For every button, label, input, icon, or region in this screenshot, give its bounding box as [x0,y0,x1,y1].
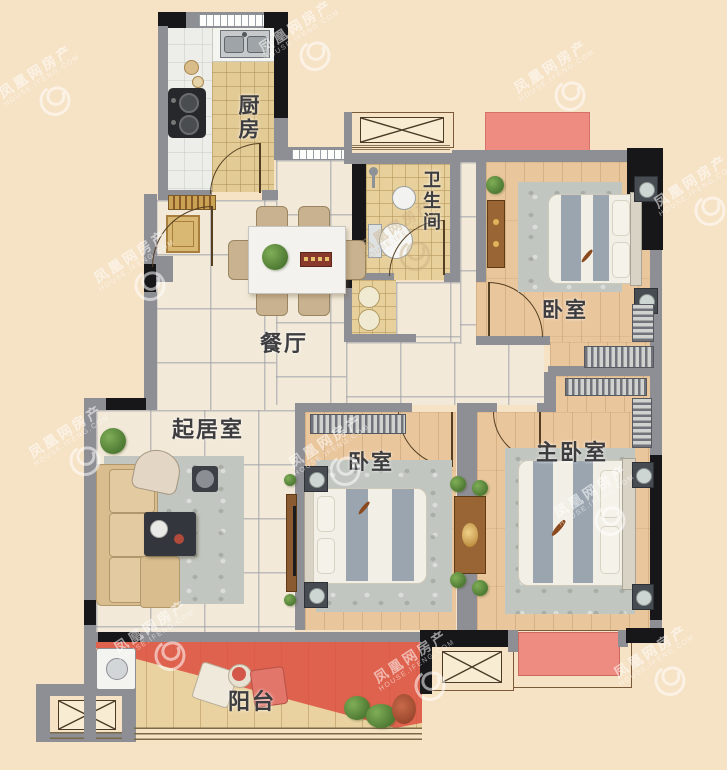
living-plant [100,428,126,454]
kitchen-wall-right [274,118,288,160]
deco-plant [284,474,296,486]
dining-table-plant [262,244,288,270]
balcony-label: 阳台 [228,684,276,716]
closet-plant [450,476,466,492]
balcony-tray [232,667,246,681]
watermark: 凤凰网房产 HOUSE.IFENG.COM [0,30,122,156]
flower-bed-post [508,630,518,652]
pillow [317,538,335,574]
headboard [630,192,642,286]
bedroom-middle-label: 卧室 [348,446,394,476]
nightstand [304,466,328,492]
bathroom-sink [392,186,416,210]
watermark-brand: 凤凰网房产 [0,30,95,114]
master-wall-top-b [537,403,556,412]
nightstand [304,582,328,608]
ac-platform-icon [360,117,444,143]
balcony-railing [134,726,422,740]
flower-bed-south [518,632,620,676]
kitchen-wall-left [158,26,168,194]
wall-black [106,398,146,410]
bathroom-wall-right [450,155,460,282]
kitchen-sink [220,30,270,58]
closet-plant [450,572,466,588]
left-wall-upper [144,292,157,402]
master-label: 主卧室 [536,435,608,467]
dining-table-tray [300,252,332,267]
dining-label: 餐厅 [260,326,308,358]
wall-black [420,630,508,647]
unit-wall-top-right [452,150,630,162]
pillow [317,496,335,532]
vanity-wall-bottom [344,334,416,342]
bedroom-north-wall-left [476,162,486,282]
master-wall-top-a [477,403,497,412]
ac-platform-icon [442,651,502,683]
watermark-domain: HOUSE.IFENG.COM [0,43,99,120]
pillow [600,470,620,518]
hall-floor-vanity [396,282,460,342]
hall-floor-east [460,162,476,344]
wardrobe [632,304,654,342]
kitchen-door-leaf [259,143,261,193]
nightstand [634,176,658,202]
entry-door-leaf [211,206,213,266]
closet-plant [472,480,488,496]
phoenix-spiral-icon [644,654,697,707]
phoenix-spiral-icon [684,184,727,237]
hall-closet [454,496,486,574]
wardrobe [310,414,406,434]
floor-plan: 厨房 卫生间 卧室 餐厅 起居室 卧室 主卧室 阳台 凤凰网房产 HOUSE.I… [0,0,727,770]
nightstand [632,462,654,488]
balcony-plant-red [392,694,416,724]
vanity-basin [358,309,380,331]
coffee-table [144,512,196,556]
bedroom-north-door-leaf [488,282,490,336]
wardrobe [632,398,652,448]
stove [168,88,206,138]
dresser [487,200,505,268]
wall-black [98,632,140,642]
bedroom-middle-wall-top [295,403,412,412]
kitchen-window [198,14,268,27]
wall-black [626,628,664,643]
kitchen-wall-bottom-post [262,190,278,200]
bedroom-north-doorway [476,282,486,336]
pillow [612,242,630,278]
bathroom-label: 卫生间 [418,170,444,233]
stool [192,466,218,492]
bedroom-north-wall-bottom [476,336,550,345]
balcony-wall-right [420,632,432,694]
wardrobe [584,346,654,368]
sofa-chaise [140,556,180,608]
wall-black [144,264,156,292]
balcony-wall-left [84,642,96,742]
bedroom-north-plant [486,176,504,194]
tv [293,506,296,576]
nightstand [632,584,654,610]
hall-floor-south [346,342,544,405]
wall-black [84,600,96,625]
kitchen-dish-decor [192,76,204,88]
dining-window [291,149,351,160]
washing-machine [96,648,136,690]
phoenix-spiral-icon [289,29,342,82]
deco-plant [284,594,296,606]
wardrobe [565,378,647,396]
bedroom-north-label: 卧室 [542,294,588,324]
living-label: 起居室 [172,412,244,444]
bedroom-middle-door-leaf [451,412,453,466]
wall-black [274,26,288,118]
pillow [612,200,630,236]
closet-plant [472,580,488,596]
shower-icon [372,174,375,188]
bathroom-wall-bottom-post [444,273,452,282]
vanity-basin [358,286,380,308]
bathroom-wall-top [344,153,454,164]
phoenix-spiral-icon [29,74,82,127]
kitchen-dish-decor [184,60,199,75]
pillow [600,526,620,574]
kitchen-label: 厨房 [232,94,262,142]
